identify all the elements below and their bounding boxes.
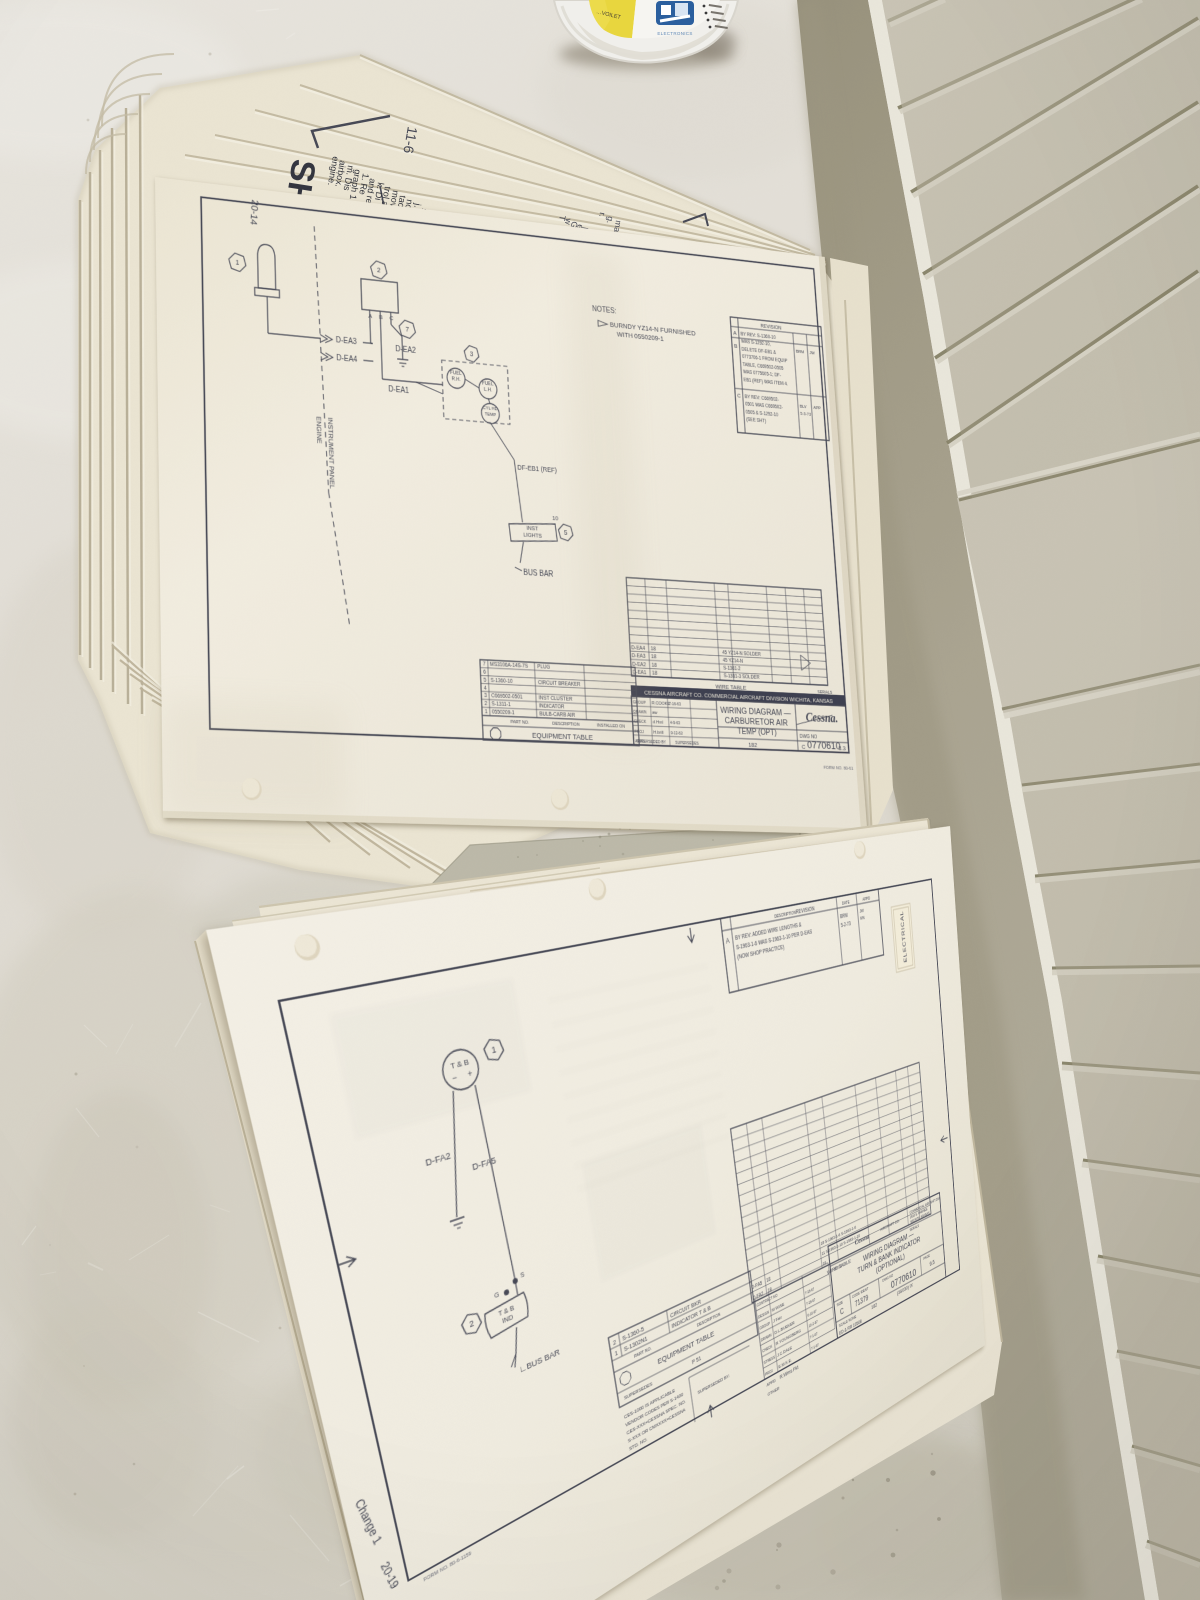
svg-text:MN: MN (860, 915, 865, 921)
svg-text:JW: JW (859, 908, 864, 914)
svg-text:ELECTRONICS: ELECTRONICS (657, 31, 692, 36)
